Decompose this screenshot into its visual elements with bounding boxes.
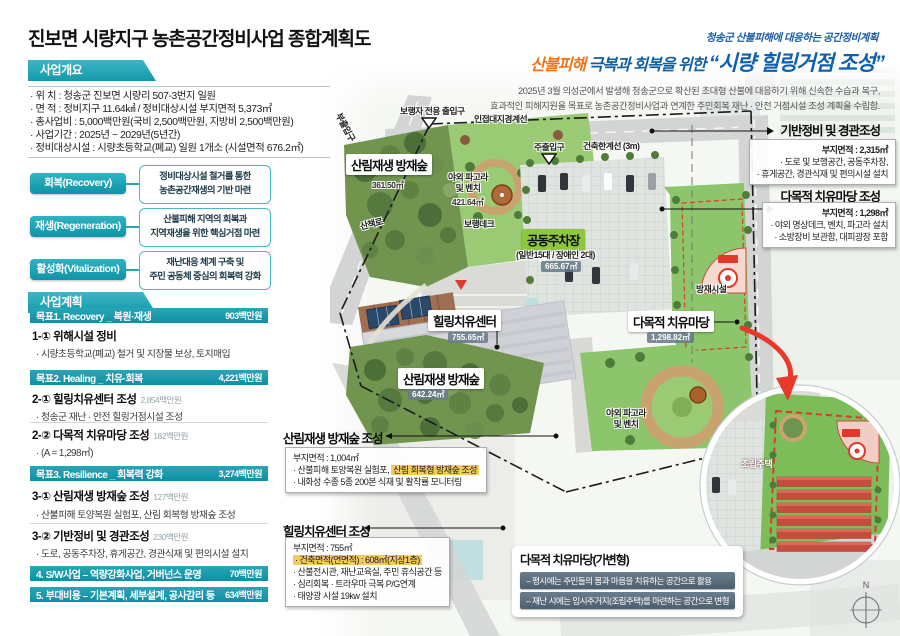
goal1-label: 목표1. Recovery _ 복원·재생 <box>36 308 151 323</box>
label-entrance-main: 주출입구 <box>534 142 564 153</box>
goal3-bar: 목표3. Resilience _ 회복력 강화 3,274백만원 <box>30 466 268 481</box>
goal2-amount: 4,221백만원 <box>219 371 262 384</box>
area-madang: 1,298.82㎡ <box>647 332 694 343</box>
callout-line: · 산불피해 토양복원 실험포, 산림 회복형 방재숲 조성 <box>293 464 479 476</box>
callout-infra-box: 부지면적 : 2,315㎡ · 도로 및 보행공간, 공동주차장, · 휴게공간… <box>749 139 896 185</box>
compass-n: N <box>863 580 870 590</box>
item-amount: 2,854백만원 <box>141 395 182 405</box>
overview-item: · 면 적 : 정비지구 11.64㎢ / 정비대상시설 부지면적 5,373㎡ <box>30 103 332 116</box>
label-forest-bottom: 산림재생 방재숲 <box>398 368 484 389</box>
strategy-recovery-button: 회복(Recovery) <box>30 173 126 194</box>
divider <box>30 422 268 423</box>
plan-item-2b-sub: · (A = 1,298㎡) <box>36 445 93 459</box>
callout-flex-card: 다목적 치유마당(가변형) – 평시에는 주민들의 몸과 마음을 치유하는 공간… <box>512 546 743 617</box>
overview-item: · 정비대상시설 : 시량초등학교(폐교) 일원 1개소 (시설면적 676.2… <box>30 142 332 155</box>
callout-line: 부지면적 : 1,004㎡ <box>293 452 479 464</box>
callout-line: · 내화성 수종 5종 200본 식재 및 활착률 모니터링 <box>293 476 479 488</box>
item-amount: 230백만원 <box>153 532 188 542</box>
area-forest-bottom: 642.24㎡ <box>408 389 448 400</box>
label-forest-top: 산림재생 방재숲 <box>346 154 432 175</box>
overview-item: · 위 치 : 청송군 진보면 시량리 507-3번지 일원 <box>30 90 332 103</box>
label-parking-capacity: (일반15대 / 장애인 2대) <box>516 250 595 261</box>
label-pagora-bottom: 야외 파고라 및 벤치 <box>606 408 646 429</box>
callout-line: · 소방장비 보관함, 대피광장 포함 <box>770 231 888 243</box>
area-pagora-top: 421.64㎡ <box>452 196 484 208</box>
page-title: 진보면 시량지구 농촌공간정비사업 종합계획도 <box>28 24 370 51</box>
callout-line-highlight: 산림 회복형 방재숲 조성 <box>391 465 479 475</box>
callout-flex-bar2: – 재난 시에는 임시주거지(조립주택)를 마련하는 공간으로 변형 <box>520 592 735 609</box>
divider <box>28 86 330 87</box>
callout-line: 부지면적 : 755㎡ <box>293 542 442 554</box>
overview-item: · 총사업비 : 5,000백만원(국비 2,500백만원, 지방비 2,500… <box>30 116 332 129</box>
slogan-desc-line1: 2025년 3월 의성군에서 발생해 청송군으로 확산된 초대형 산불에 대응하… <box>490 84 880 99</box>
strategy-desc-line: 지역재생을 위한 핵심거점 마련 <box>140 226 270 240</box>
row5-label: 5. 부대비용 – 기본계획, 세부설계, 공사감리 등 <box>36 587 215 602</box>
plan-item-3b-title: 3-② 기반정비 및 경관조성230백만원 <box>32 528 188 544</box>
divider <box>30 523 268 524</box>
callout-line: · 야외 명상데크, 벤치, 파고라 설치 <box>770 219 888 231</box>
label-building-limit: 건축한계선 (3m) <box>583 141 639 152</box>
label-deck: 보행데크 <box>464 219 494 230</box>
strategy-desc-line: 재난대응 체계 구축 및 <box>140 255 270 269</box>
strategy-vitalization-button: 활성화(Vitalization) <box>30 259 126 280</box>
plan-item-1-title: 1-① 위해시설 정비 <box>32 328 120 344</box>
connector <box>126 269 139 271</box>
callout-line: 부지면적 : 2,315㎡ <box>757 144 888 156</box>
item-title-text: 2-② 다목적 치유마당 조성 <box>32 430 149 442</box>
goal2-label: 목표2. Healing _ 치유·회복 <box>36 370 143 385</box>
callout-flex-bar1: – 평시에는 주민들의 몸과 마음을 치유하는 공간으로 활용 <box>520 572 735 589</box>
item-title-text: 3-① 산림재생 방재숲 조성 <box>32 491 149 503</box>
item-amount: 127백만원 <box>153 492 188 502</box>
slogan-kicker: 청송군 산불피해에 대응하는 공간정비계획 <box>706 30 878 45</box>
row4-bar: 4. S/W사업 – 역량강화사업, 거버넌스 운영 70백만원 <box>30 566 268 581</box>
callout-line: · 심리회복 · 트라우마 극복 P/G연계 <box>293 578 442 590</box>
strategy-desc-line: 정비대상시설 철거를 통한 <box>140 169 270 183</box>
strategy-regeneration-desc: 산불피해 지역의 회복과 지역재생을 위한 핵심거점 마련 <box>139 208 271 247</box>
connector <box>126 226 139 228</box>
overview-item: · 사업기간 : 2025년 ~ 2029년(5년간) <box>30 129 332 142</box>
strategy-recovery-desc: 정비대상시설 철거를 통한 농촌공간재생의 기반 마련 <box>139 165 271 204</box>
tab-project-overview: 사업개요 <box>28 60 156 81</box>
goal2-bar: 목표2. Healing _ 치유·회복 4,221백만원 <box>30 370 268 385</box>
item-amount: 182백만원 <box>153 431 188 441</box>
callout-forest-title: 산림재생 방재숲 조성 <box>283 428 382 447</box>
item-title-text: 2-① 힐링치유센터 조성 <box>32 394 137 406</box>
plan-item-2a-sub: · 청송군 재난 · 안전 힐링거점시설 조성 <box>36 409 183 423</box>
item-title-text: 1-① 위해시설 정비 <box>32 331 116 343</box>
connector <box>126 183 139 185</box>
strategy-desc-line: 주민 공동체 중심의 회복력 강화 <box>140 269 270 283</box>
callout-line: · 건축면적(연면적) : 608㎡(지상1층) <box>293 554 442 566</box>
slogan-line: 산불피해 극복과 회복을 위한 “시량 힐링거점 조성” <box>530 47 884 77</box>
overview-list: · 위 치 : 청송군 진보면 시량리 507-3번지 일원 · 면 적 : 정… <box>30 90 332 155</box>
slogan-description: 2025년 3월 의성군에서 발생해 청송군으로 확산된 초대형 산불에 대응하… <box>490 84 880 114</box>
slogan-desc-line2: 효과적인 피해지원을 목표로 농촌공간정비사업과 연계한 주민회복 재난 · 안… <box>490 99 880 114</box>
strategy-desc-line: 산불피해 지역의 회복과 <box>140 212 270 226</box>
callout-line-pre: · 산불피해 토양복원 실험포, <box>293 465 391 475</box>
plan-item-3a-title: 3-① 산림재생 방재숲 조성127백만원 <box>32 488 188 504</box>
slogan-quoted: “시량 힐링거점 조성” <box>709 52 884 75</box>
master-plan-poster: { "colors":{"accent_teal":"#1ba3b4","slo… <box>0 0 900 636</box>
plan-item-2b-title: 2-② 다목적 치유마당 조성182백만원 <box>32 427 188 443</box>
row4-label: 4. S/W사업 – 역량강화사업, 거버넌스 운영 <box>36 566 201 581</box>
callout-line: · 도로 및 보행공간, 공동주차장, <box>757 156 888 168</box>
goal3-amount: 3,274백만원 <box>219 467 262 480</box>
callout-forest-box: 부지면적 : 1,004㎡ · 산불피해 토양복원 실험포, 산림 회복형 방재… <box>285 447 487 493</box>
plan-item-3a-sub: · 산불피해 토양복원 실험포, 산림 회복형 방재숲 조성 <box>36 507 235 521</box>
callout-line-highlight: · 건축면적(연면적) : 608㎡(지상1층) <box>293 555 422 565</box>
label-madang: 다목적 치유마당 <box>628 311 714 332</box>
label-healing-center: 힐링치유센터 <box>428 310 501 331</box>
row5-bar: 5. 부대비용 – 기본계획, 세부설계, 공사감리 등 634백만원 <box>30 587 268 602</box>
callout-madang-box: 부지면적 : 1,298㎡ · 야외 명상데크, 벤치, 파고라 설치 · 소방… <box>762 202 896 248</box>
row4-amount: 70백만원 <box>230 567 262 580</box>
entrance-triangle-icon <box>421 117 437 129</box>
area-parking: 665.67㎡ <box>541 261 581 272</box>
slogan-mid: 극복과 회복을 위한 <box>585 57 709 74</box>
callout-line: · 휴게공간, 경관식재 및 편의시설 설치 <box>757 168 888 180</box>
entrance-triangle-icon <box>541 153 557 165</box>
label-pagora-top: 야외 파고라 및 벤치 <box>448 172 488 193</box>
callout-flex-title: 다목적 치유마당(가변형) <box>520 551 735 568</box>
goal3-label: 목표3. Resilience _ 회복력 강화 <box>36 466 163 481</box>
slogan-highlight: 산불피해 <box>530 57 585 74</box>
area-forest-top: 361.50㎡ <box>372 179 404 191</box>
callout-center-box: 부지면적 : 755㎡ · 건축면적(연면적) : 608㎡(지상1층) · 산… <box>285 537 450 607</box>
callout-line: 부지면적 : 1,298㎡ <box>770 207 888 219</box>
compass-icon: N <box>846 578 886 632</box>
label-boundary-line: 인접대지경계선 <box>474 114 527 125</box>
row5-amount: 634백만원 <box>225 588 262 601</box>
callout-line: · 태양광 시설 19kw 설치 <box>293 590 442 602</box>
divider <box>28 157 330 158</box>
plan-item-1-sub: · 시량초등학교(폐교) 철거 및 지장물 보상, 토지매입 <box>36 346 230 360</box>
goal1-amount: 903백만원 <box>225 309 262 322</box>
item-title-text: 3-② 기반정비 및 경관조성 <box>32 531 149 543</box>
label-entrance-ped: 보행자 전용 출입구 <box>400 106 465 117</box>
plan-item-2a-title: 2-① 힐링치유센터 조성2,854백만원 <box>32 391 181 407</box>
label-parking: 공동주차장 <box>522 229 585 250</box>
area-healing-center: 755.65㎡ <box>448 332 488 343</box>
strategy-vitalization-desc: 재난대응 체계 구축 및 주민 공동체 중심의 회복력 강화 <box>139 251 271 290</box>
label-fire-facility: 방재시설 <box>696 284 726 295</box>
callout-infra-title: 기반정비 및 경관조성 <box>781 120 880 139</box>
strategy-regeneration-button: 재생(Regeneration) <box>30 216 126 237</box>
label-prefab-housing: 조립주택 <box>741 457 772 470</box>
plan-item-3b-sub: · 도로, 공동주차장, 휴게공간, 경관식재 및 편의시설 설치 <box>36 546 248 560</box>
goal1-bar: 목표1. Recovery _ 복원·재생 903백만원 <box>30 308 268 323</box>
callout-line: · 산불전시관, 재난교육실, 주민 휴식공간 등 <box>293 566 442 578</box>
strategy-desc-line: 농촌공간재생의 기반 마련 <box>140 183 270 197</box>
